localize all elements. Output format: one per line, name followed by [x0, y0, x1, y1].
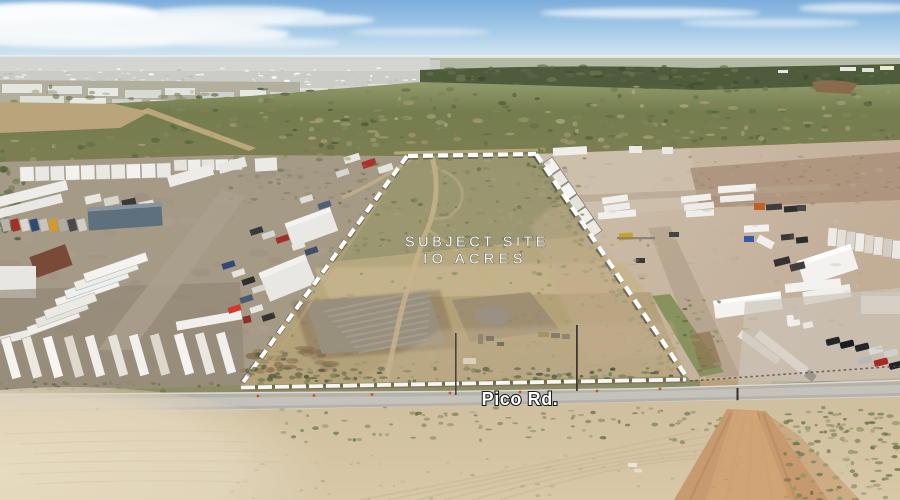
svg-text:SUBJECT SITE: SUBJECT SITE	[405, 235, 549, 251]
svg-text:Pico Rd.: Pico Rd.	[482, 389, 559, 409]
svg-text:IO ACRES: IO ACRES	[423, 252, 527, 268]
